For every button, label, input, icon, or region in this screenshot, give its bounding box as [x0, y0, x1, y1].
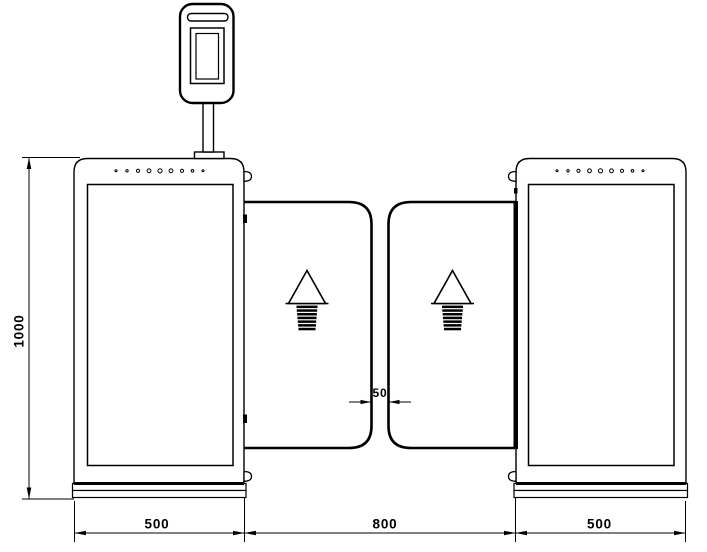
turnstile-front-elevation-drawing: 1000 500 800 500 50 [0, 0, 707, 552]
drawing-canvas: 1000 500 800 500 50 [0, 0, 707, 552]
dimension-label-height: 1000 [12, 314, 27, 347]
right-flap-mount-bar [514, 201, 519, 449]
right-cabinet-bottom-hinge-cap [509, 472, 517, 482]
right-cabinet-top-hinge-cap [509, 172, 517, 182]
dimension-label-passage: 800 [373, 517, 398, 532]
dimension-label-left-cabinet: 500 [145, 517, 170, 532]
dimension-width-chain: 500 800 500 [75, 498, 686, 542]
left-cabinet-base-strip-lower [73, 491, 247, 498]
dimension-label-right-cabinet: 500 [587, 517, 612, 532]
dimension-label-flap-gap: 50 [373, 386, 388, 400]
left-flap-bottom-hinge [243, 415, 247, 424]
right-flap-upper-hinge [514, 188, 518, 194]
terminal-camera-slot [188, 14, 229, 22]
left-cabinet-top-hinge-cap [244, 172, 252, 182]
arrowhead [245, 531, 257, 536]
left-flap-top-hinge [243, 215, 247, 224]
arrowhead-left-end [75, 531, 87, 536]
right-cabinet-base-strip-lower [514, 491, 688, 498]
dimension-overall-height: 1000 [12, 158, 81, 500]
terminal-mount-base [195, 152, 225, 159]
arrowhead [516, 531, 528, 536]
face-recognition-terminal [180, 4, 234, 159]
arrowhead-down [27, 488, 32, 500]
right-cabinet [509, 159, 688, 498]
arrowhead [504, 531, 516, 536]
terminal-pole [203, 103, 214, 152]
right-cabinet-body [516, 159, 686, 484]
arrowhead [233, 531, 245, 536]
terminal-screen [196, 34, 219, 80]
left-cabinet [73, 159, 252, 498]
arrowhead-up [27, 158, 32, 170]
arrowhead-right-end [674, 531, 686, 536]
swing-flaps [245, 202, 516, 448]
left-cabinet-bottom-hinge-cap [244, 472, 252, 482]
left-cabinet-body [74, 159, 244, 484]
